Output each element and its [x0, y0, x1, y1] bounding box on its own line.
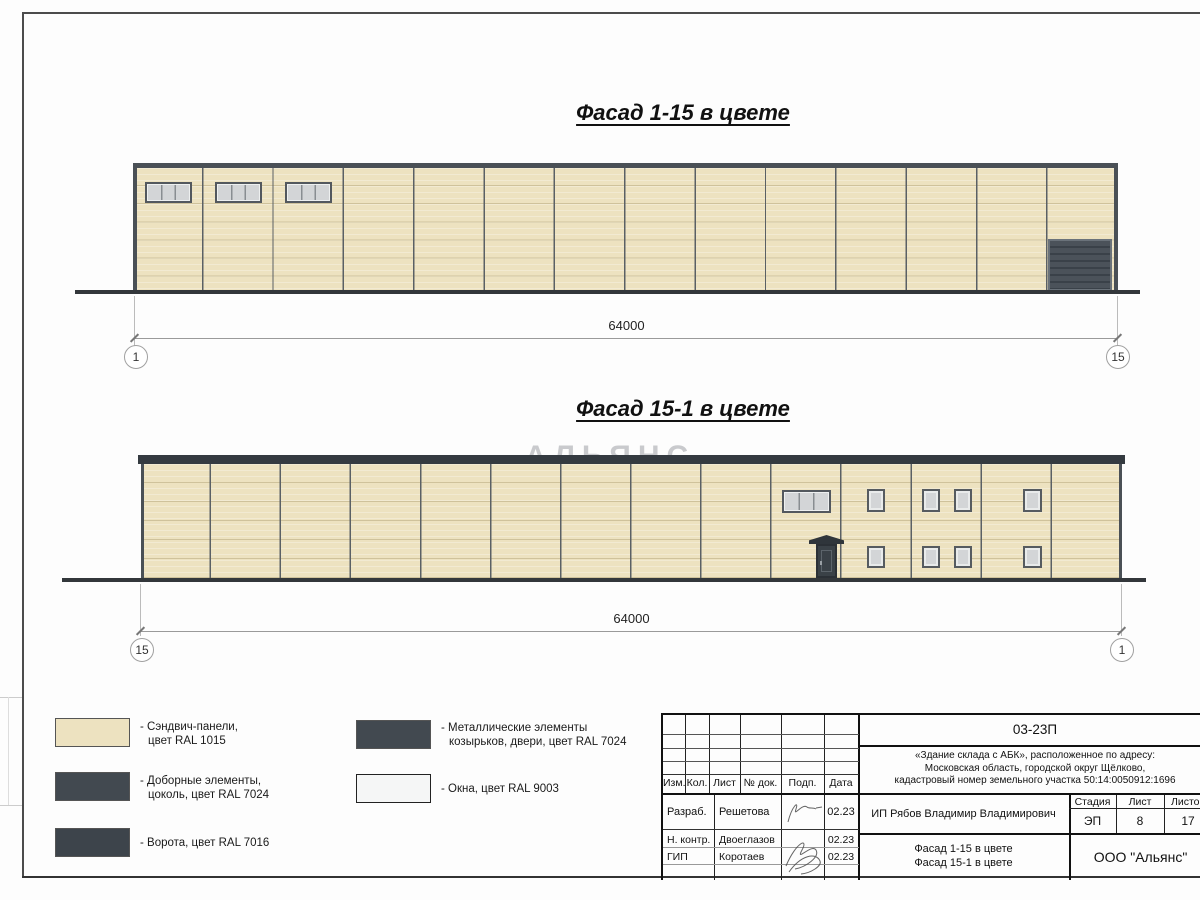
frame-top	[22, 12, 1200, 14]
legend-line: - Окна, цвет RAL 9003	[441, 782, 559, 796]
facade2-wall-panels	[141, 464, 1122, 578]
legend-label-sandwich-panels: - Сэндвич-панели, цвет RAL 1015	[140, 720, 238, 748]
facade1-corner-left	[133, 163, 137, 291]
tb-drawing-name-line: Фасад 15-1 в цвете	[858, 857, 1069, 871]
tb-sheets-value: 17	[1164, 814, 1200, 828]
door-handle	[820, 561, 822, 565]
legend-line: - Ворота, цвет RAL 7016	[140, 836, 269, 850]
legend-line: - Доборные элементы,	[140, 774, 269, 788]
facade2-dimension-line	[141, 631, 1122, 632]
facade2-ribbon-window	[782, 490, 831, 513]
legend-swatch-windows	[356, 774, 431, 803]
tb-address: «Здание склада с АБК», расположенное по …	[858, 750, 1200, 788]
facade1-ribbon-window-2	[215, 182, 262, 203]
facade2-window-up-1	[867, 489, 885, 512]
legend-label-metal-elements: - Металлические элементы козырьков, двер…	[441, 721, 626, 749]
facade2-window-low-3	[954, 546, 972, 568]
margin-line-1	[0, 697, 22, 698]
legend-swatch-trim-elements	[55, 772, 130, 801]
tb-name-razrab: Решетова	[719, 806, 769, 818]
tb-line	[858, 745, 1200, 747]
tb-date-nkontr: 02.23	[824, 834, 858, 846]
facade1-ribbon-window-3	[285, 182, 332, 203]
facade2-corner-right	[1119, 464, 1122, 578]
tb-role-gip: ГИП	[667, 851, 688, 863]
facade2-window-low-4	[1023, 546, 1042, 568]
title-block: Изм. Кол. Лист № док. Подп. Дата 03-23П …	[661, 713, 1200, 880]
tb-address-line: кадастровый номер земельного участка 50:…	[858, 775, 1200, 788]
facade2-dimension-value: 64000	[141, 611, 1122, 626]
tb-header-data: Дата	[824, 777, 858, 789]
tb-sheet-value: 8	[1116, 814, 1164, 828]
facade2-title: Фасад 15-1 в цвете	[483, 396, 883, 422]
margin-line-3	[8, 697, 9, 805]
tb-drawing-name: Фасад 1-15 в цвете Фасад 15-1 в цвете	[858, 843, 1069, 870]
signature-nkontr-gip	[786, 843, 820, 874]
facade2-entrance-door	[816, 544, 837, 578]
facade2-drawing	[141, 455, 1122, 578]
facade1-dimension-line	[135, 338, 1118, 339]
tb-header-izm: Изм.	[663, 777, 685, 789]
tb-line	[714, 794, 715, 880]
legend-label-trim-elements: - Доборные элементы, цоколь, цвет RAL 70…	[140, 774, 269, 802]
facade1-corner-right	[1114, 163, 1118, 291]
facade2-window-low-2	[922, 546, 940, 568]
frame-left	[22, 12, 24, 878]
tb-date-gip: 02.23	[824, 851, 858, 863]
legend-line: - Металлические элементы	[441, 721, 626, 735]
door-panel	[821, 550, 832, 572]
tb-client: ИП Рябов Владимир Владимирович	[858, 808, 1069, 820]
tb-date-razrab: 02.23	[824, 806, 858, 818]
facade1-ground-line	[75, 290, 1140, 294]
facade2-axis-right: 1	[1110, 638, 1134, 662]
tb-line	[663, 748, 859, 749]
legend-swatch-gates	[55, 828, 130, 857]
tb-line	[663, 829, 859, 830]
tb-address-line: Московская область, городской округ Щёлк…	[858, 763, 1200, 776]
tb-doc-number: 03-23П	[858, 722, 1200, 737]
tb-header-kol: Кол.	[685, 777, 709, 789]
legend-swatch-metal-elements	[356, 720, 431, 749]
margin-line-2	[0, 805, 22, 806]
tb-drawing-name-line: Фасад 1-15 в цвете	[858, 843, 1069, 857]
legend-swatch-sandwich-panels	[55, 718, 130, 747]
facade1-ribbon-window-1	[145, 182, 192, 203]
legend-label-windows: - Окна, цвет RAL 9003	[441, 782, 559, 796]
legend-line: - Сэндвич-панели,	[140, 720, 238, 734]
tb-line	[663, 734, 859, 735]
tb-line	[663, 761, 859, 762]
tb-line	[1069, 808, 1200, 809]
tb-stage-label: Стадия	[1069, 796, 1116, 808]
tb-line	[663, 774, 859, 775]
tb-name-nkontr: Двоеглазов	[719, 834, 775, 846]
tb-line	[663, 793, 1200, 795]
tb-sheet-label: Лист	[1116, 796, 1164, 808]
tb-sheets-label: Листов	[1164, 796, 1200, 808]
drawing-sheet: Фасад 1-15 в цвете Фасад 15-1 в цвете 64…	[0, 0, 1200, 900]
facade1-axis-right: 15	[1106, 345, 1130, 369]
facade1-title: Фасад 1-15 в цвете	[483, 100, 883, 126]
legend-line: цоколь, цвет RAL 7024	[140, 788, 269, 802]
facade1-gate	[1048, 239, 1112, 291]
facade2-axis-left: 15	[130, 638, 154, 662]
facade1-drawing	[133, 163, 1118, 291]
facade1-axis-left: 1	[124, 345, 148, 369]
tb-line	[663, 847, 859, 848]
facade2-window-up-4	[1023, 489, 1042, 512]
tb-line	[858, 833, 1200, 835]
facade2-ground-line	[62, 578, 1146, 582]
facade2-window-low-1	[867, 546, 885, 568]
tb-role-razrab: Разраб.	[667, 806, 707, 818]
facade2-window-up-3	[954, 489, 972, 512]
facade2-parapet	[138, 455, 1125, 464]
tb-header-list: Лист	[709, 777, 740, 789]
tb-role-nkontr: Н. контр.	[667, 834, 710, 846]
tb-name-gip: Коротаев	[719, 851, 764, 863]
legend-label-gates: - Ворота, цвет RAL 7016	[140, 836, 269, 850]
facade1-dimension-value: 64000	[135, 318, 1118, 333]
facade2-corner-left	[141, 464, 144, 578]
tb-header-podp: Подп.	[781, 777, 824, 789]
legend-line: козырьков, двери, цвет RAL 7024	[441, 735, 626, 749]
tb-header-ndok: № док.	[740, 777, 781, 789]
tb-address-line: «Здание склада с АБК», расположенное по …	[858, 750, 1200, 763]
tb-line	[663, 864, 859, 865]
facade2-window-up-2	[922, 489, 940, 512]
signature-razrab	[781, 794, 824, 880]
tb-organization: ООО "Альянс"	[1069, 849, 1200, 865]
legend-line: цвет RAL 1015	[140, 734, 238, 748]
tb-stage-value: ЭП	[1069, 814, 1116, 828]
facade1-wall-panels	[133, 168, 1118, 291]
